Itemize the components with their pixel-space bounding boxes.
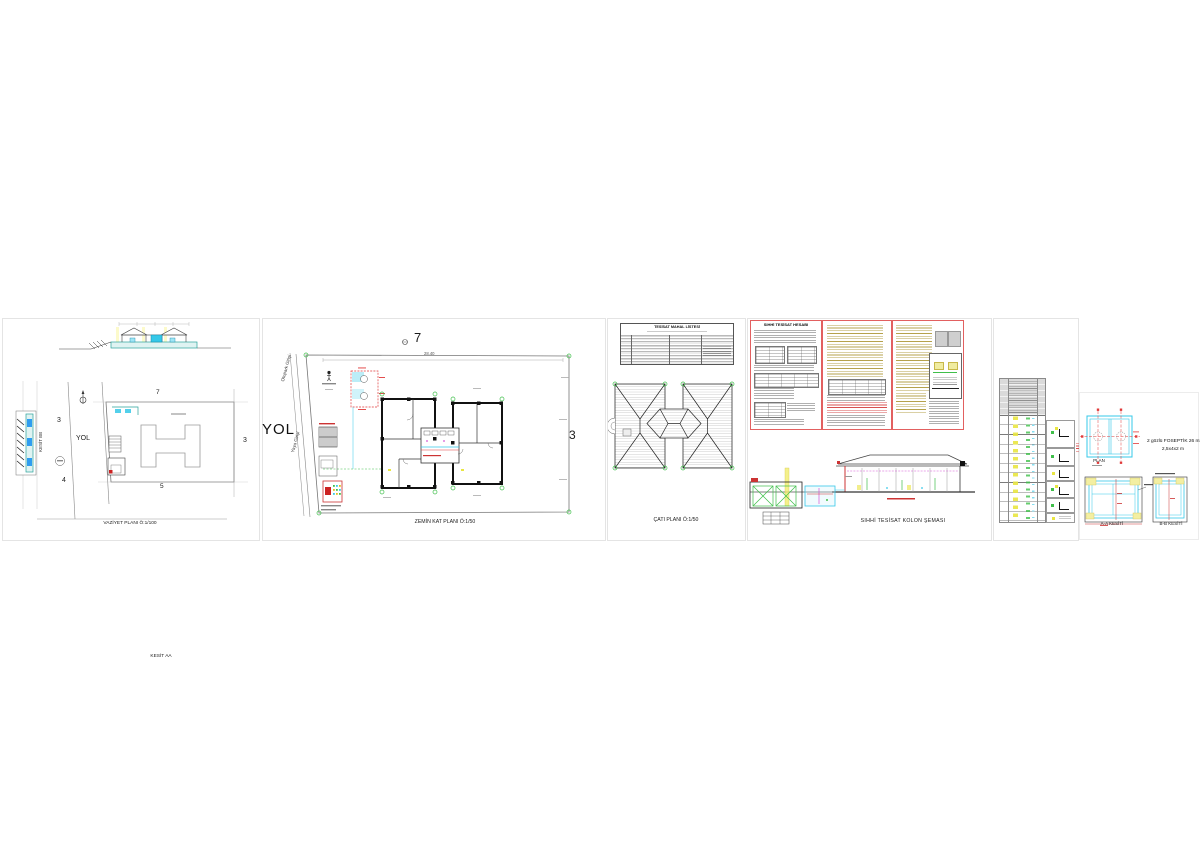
section-bb-label: KESİT BB xyxy=(39,432,44,452)
foseptik-bb-label: B-B KESİTİ xyxy=(1150,522,1192,527)
riser-detail-box xyxy=(1046,498,1075,513)
riser-detail-box xyxy=(1046,466,1075,481)
riser-detail-box xyxy=(1046,448,1075,466)
parcel-number-bottom-left: 4 xyxy=(62,477,66,484)
septic-section-aa xyxy=(1085,477,1156,526)
riser-table-header xyxy=(1000,379,1045,416)
panel-box xyxy=(321,481,342,510)
section-aa-drawing xyxy=(59,322,231,349)
calc-box-sihhi-tesisat: SIHHİ TESİSAT HESABI xyxy=(750,320,822,430)
calc-table-1 xyxy=(755,346,785,364)
schedule-title: TESİSAT MAHAL LİSTESİ xyxy=(621,326,733,330)
riser-detail-box xyxy=(1046,513,1075,523)
sheet3-caption: ÇATI PLANI Ö:1/50 xyxy=(626,518,726,523)
sheet2-caption: ZEMİN KAT PLANI Ö:1/50 xyxy=(383,520,507,525)
foseptik-note-line1: 2 gözlü FOSEPTİK 26 m3 xyxy=(1147,440,1199,445)
sheet-vaziyet-plani: KESİT AA xyxy=(2,318,260,541)
sheet1-caption: VAZİYET PLANI Ö:1/100 xyxy=(70,522,190,527)
riser-detail-box xyxy=(1046,420,1075,448)
stairs xyxy=(319,423,337,447)
notes-table xyxy=(828,379,886,395)
site-plan-parcels xyxy=(56,382,249,519)
parcel-number-left: 3 xyxy=(57,417,61,424)
red-warning-lines xyxy=(827,402,887,413)
calc-table-3 xyxy=(754,402,786,418)
parcel-number-top: 7 xyxy=(156,390,160,397)
tesisat-mahal-listesi-table: TESİSAT MAHAL LİSTESİ xyxy=(620,323,734,365)
sheet-foseptik-detay xyxy=(1079,392,1199,540)
schedule-note-lines xyxy=(703,346,731,356)
zemin-parcel-top: 7 xyxy=(414,331,421,344)
sheet4-caption: SIHHİ TESİSAT KOLON ŞEMASI xyxy=(841,519,965,524)
foseptik-note-line2: 2,5x4x2 m xyxy=(1147,448,1199,453)
foseptik-aa-label: A-A KESİTİ xyxy=(1089,522,1135,527)
riser-table xyxy=(999,378,1046,523)
septic-plan xyxy=(1080,409,1140,467)
riser-detail-box xyxy=(1046,481,1075,498)
septic-section xyxy=(750,468,845,524)
legend-swatch-2 xyxy=(948,331,961,347)
calc-box-title: SIHHİ TESİSAT HESABI xyxy=(751,323,821,327)
septic-section-bb xyxy=(1153,473,1187,522)
schedule-subtitle-lines xyxy=(647,331,707,333)
calc-table-wide xyxy=(754,373,819,388)
building-plan xyxy=(380,392,504,494)
septic-detail-drawing xyxy=(1080,393,1198,539)
septic-tank-plan xyxy=(323,368,385,470)
sheet-cati-plani: TESİSAT MAHAL LİSTESİ xyxy=(607,318,746,541)
calc-table-2 xyxy=(787,346,817,364)
top-dimension-text: 28.40 xyxy=(424,352,434,356)
foseptik-plan-label: PLAN xyxy=(1086,459,1112,464)
notes-box-middle xyxy=(822,320,892,430)
drawing-canvas: KESİT AA KESİT BB 3 4 YOL 7 5 3 VAZİYET … xyxy=(0,0,1200,849)
site-plan-drawing xyxy=(3,319,259,540)
section-aa-label: KESİT AA xyxy=(139,655,183,660)
zemin-parcel-right: 3 xyxy=(569,429,576,441)
section-bb-drawing xyxy=(16,381,37,509)
parcel-number-right: 3 xyxy=(243,437,247,444)
detail-inset-box xyxy=(929,353,962,399)
notes-box-right xyxy=(892,320,964,430)
parcel-number-bottom: 5 xyxy=(160,484,164,491)
road-label-large: YOL xyxy=(262,422,295,437)
road-label-small: YOL xyxy=(76,435,90,442)
riser-table-rows xyxy=(1000,415,1045,522)
legend-swatch-1 xyxy=(935,331,948,347)
person-figure xyxy=(327,371,331,381)
